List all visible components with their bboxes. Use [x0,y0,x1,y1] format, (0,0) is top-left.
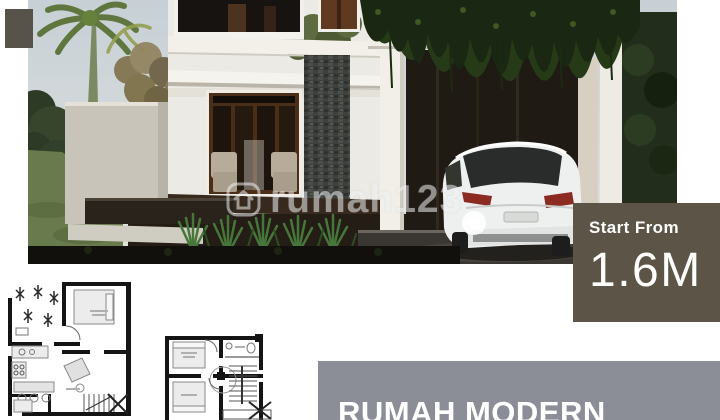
price-label: Start From [589,218,720,238]
stone-wall [304,55,350,217]
price-box: Start From 1.6M [573,203,720,322]
white-suv [435,143,585,261]
flyer-canvas: rumah123 Start From 1.6M [0,0,720,420]
floorplan-upper [165,322,278,420]
corner-tag [5,9,33,48]
banner-title: RUMAH MODERN [338,397,606,420]
hedge-strip [28,246,460,264]
price-value: 1.6M [589,247,720,295]
plan-garden [16,285,58,327]
floorplan-ground [8,282,140,420]
bottom-banner: RUMAH MODERN [318,361,720,420]
